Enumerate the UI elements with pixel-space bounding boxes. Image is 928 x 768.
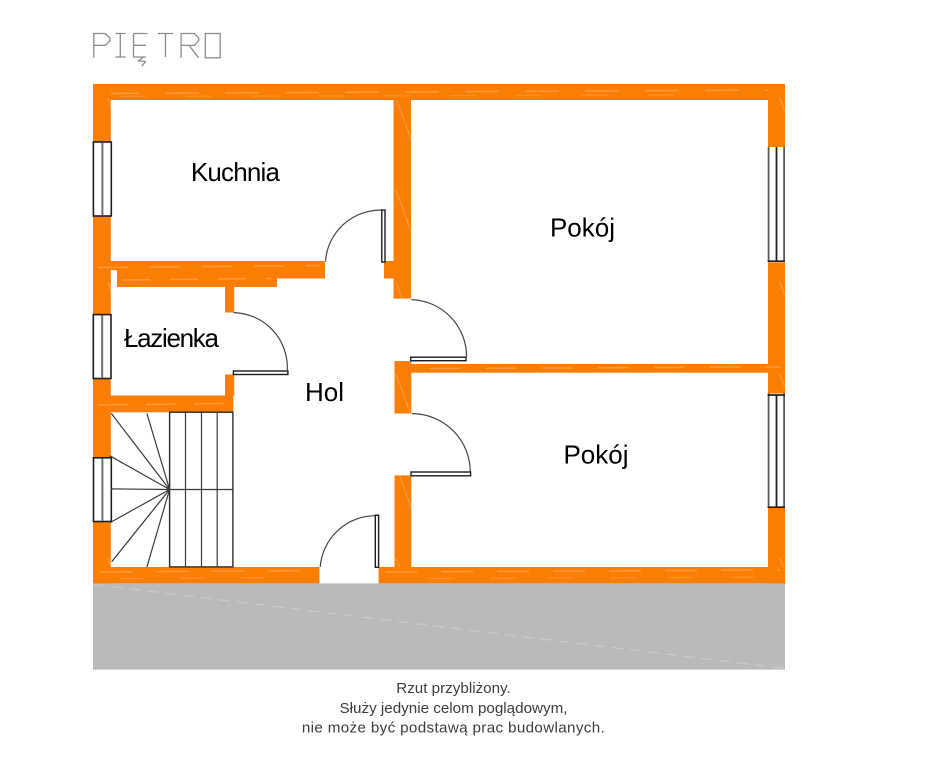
- svg-text:Łazienka: Łazienka: [124, 323, 220, 353]
- svg-text:Pokój: Pokój: [550, 212, 615, 242]
- svg-text:Hol: Hol: [305, 377, 344, 407]
- svg-text:Rzut przybliżony.: Rzut przybliżony.: [396, 680, 511, 697]
- svg-text:Kuchnia: Kuchnia: [191, 157, 281, 187]
- svg-text:nie może być podstawą prac bud: nie może być podstawą prac budowlanych.: [302, 720, 605, 737]
- svg-text:Pokój: Pokój: [563, 440, 628, 470]
- svg-text:Służy jedynie celom poglądowym: Służy jedynie celom poglądowym,: [340, 700, 568, 717]
